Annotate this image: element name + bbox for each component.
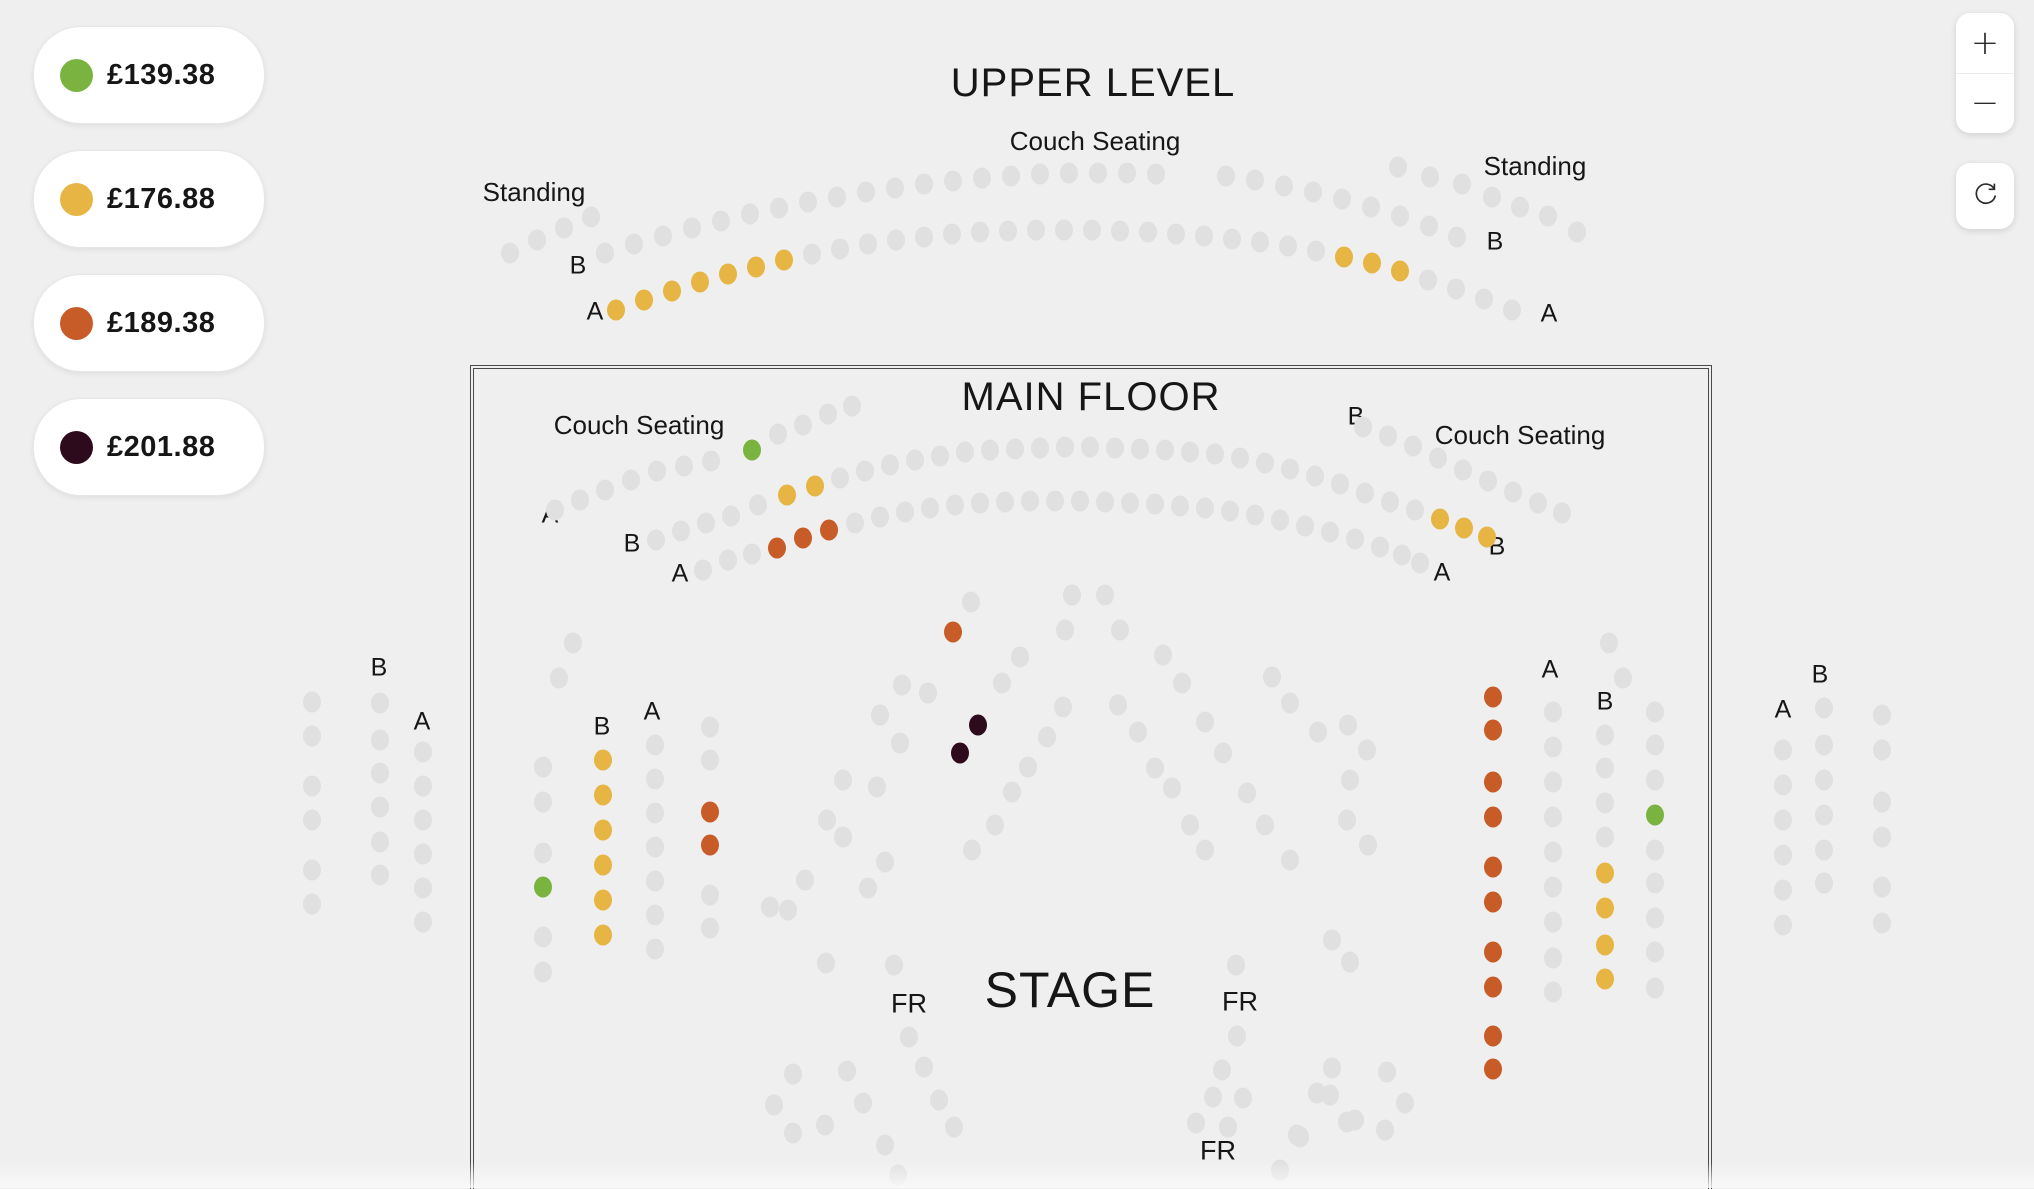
seat-available-orange[interactable] <box>1484 977 1502 998</box>
seat-available-yellow[interactable] <box>1335 247 1353 268</box>
seat-unavailable <box>1544 702 1562 723</box>
seat-unavailable <box>702 451 720 472</box>
seat-unavailable <box>876 1135 894 1156</box>
price-label: £189.38 <box>107 307 215 340</box>
seat-unavailable <box>1223 229 1241 250</box>
seat-unavailable <box>838 1061 856 1082</box>
seat-unavailable <box>854 1093 872 1114</box>
seat-unavailable <box>993 673 1011 694</box>
seat-unavailable <box>1038 727 1056 748</box>
seat-unavailable <box>1031 438 1049 459</box>
seat-unavailable <box>943 224 961 245</box>
seat-unavailable <box>973 168 991 189</box>
seat-unavailable <box>1381 492 1399 513</box>
seat-unavailable <box>945 1117 963 1138</box>
seat-available-yellow[interactable] <box>1431 509 1449 530</box>
seat-unavailable <box>1815 840 1833 861</box>
seat-unavailable <box>843 396 861 417</box>
zoom-in-button[interactable]: + <box>1956 13 2014 73</box>
seat-unavailable <box>1060 163 1078 184</box>
seat-unavailable <box>1359 835 1377 856</box>
seat-available-yellow[interactable] <box>1391 261 1409 282</box>
seat-available-yellow[interactable] <box>594 785 612 806</box>
seat-unavailable <box>831 239 849 260</box>
seat-unavailable <box>1614 668 1632 689</box>
seat-unavailable <box>1307 241 1325 262</box>
seat-unavailable <box>414 844 432 865</box>
seat-unavailable <box>817 953 835 974</box>
seat-unavailable <box>828 187 846 208</box>
seat-unavailable <box>896 502 914 523</box>
seat-available-yellow[interactable] <box>691 272 709 293</box>
seat-unavailable <box>1393 545 1411 566</box>
seat-unavailable <box>1219 1117 1237 1138</box>
seat-unavailable <box>794 415 812 436</box>
seat-available-green[interactable] <box>1646 805 1664 826</box>
seat-unavailable <box>1195 226 1213 247</box>
seat-unavailable <box>1181 815 1199 836</box>
seat-unavailable <box>1873 740 1891 761</box>
seat-unavailable <box>1774 775 1792 796</box>
seat-available-orange[interactable] <box>1484 772 1502 793</box>
seat-unavailable <box>971 493 989 514</box>
seat-unavailable <box>1231 448 1249 469</box>
seat-unavailable <box>1815 873 1833 894</box>
seat-unavailable <box>769 424 787 445</box>
seat-unavailable <box>1323 1058 1341 1079</box>
seat-unavailable <box>1011 647 1029 668</box>
seat-unavailable <box>944 171 962 192</box>
seat-unavailable <box>1263 667 1281 688</box>
seat-unavailable <box>1275 176 1293 197</box>
seat-unavailable <box>1646 770 1664 791</box>
row-label: A <box>414 710 431 735</box>
seat-unavailable <box>1321 522 1339 543</box>
seat-unavailable <box>1338 810 1356 831</box>
seat-unavailable <box>765 1095 783 1116</box>
seat-available-orange[interactable] <box>1484 1026 1502 1047</box>
seat-available-orange[interactable] <box>1484 807 1502 828</box>
seat-unavailable <box>534 962 552 983</box>
seat-available-yellow[interactable] <box>1596 898 1614 919</box>
zoom-controls: + − <box>1956 13 2014 133</box>
row-label: A <box>1434 561 1451 586</box>
seat-unavailable <box>1596 758 1614 779</box>
seat-unavailable <box>1323 930 1341 951</box>
seat-unavailable <box>743 544 761 565</box>
seat-available-dark[interactable] <box>951 743 969 764</box>
seat-available-yellow[interactable] <box>775 250 793 271</box>
seat-unavailable <box>1379 426 1397 447</box>
seat-unavailable <box>1083 220 1101 241</box>
seat-unavailable <box>1341 952 1359 973</box>
seat-available-yellow[interactable] <box>1596 935 1614 956</box>
seat-unavailable <box>528 230 546 251</box>
seat-unavailable <box>1371 537 1389 558</box>
seat-unavailable <box>856 461 874 482</box>
seat-available-yellow[interactable] <box>1455 518 1473 539</box>
seat-unavailable <box>1173 673 1191 694</box>
seat-unavailable <box>834 770 852 791</box>
seat-unavailable <box>818 810 836 831</box>
seat-unavailable <box>1475 289 1493 310</box>
seat-unavailable <box>1421 167 1439 188</box>
seat-available-yellow[interactable] <box>778 485 796 506</box>
row-label: A <box>1541 302 1558 327</box>
seat-available-yellow[interactable] <box>594 750 612 771</box>
seat-unavailable <box>596 480 614 501</box>
seat-unavailable <box>1163 778 1181 799</box>
seat-unavailable <box>646 769 664 790</box>
seat-unavailable <box>1339 715 1357 736</box>
seat-unavailable <box>956 442 974 463</box>
seat-unavailable <box>1147 164 1165 185</box>
seat-available-yellow[interactable] <box>1596 969 1614 990</box>
seat-unavailable <box>1251 232 1269 253</box>
seat-unavailable <box>1404 436 1422 457</box>
seat-unavailable <box>1873 913 1891 934</box>
seat-available-green[interactable] <box>534 877 552 898</box>
seat-unavailable <box>1171 496 1189 517</box>
seat-available-orange[interactable] <box>1484 942 1502 963</box>
legend-item: £176.88 <box>33 150 265 248</box>
seat-unavailable <box>859 878 877 899</box>
seat-unavailable <box>534 792 552 813</box>
seat-unavailable <box>1228 1026 1246 1047</box>
seat-available-yellow[interactable] <box>594 855 612 876</box>
price-color-dot <box>60 59 93 92</box>
seat-unavailable <box>741 204 759 225</box>
seat-available-dark[interactable] <box>969 715 987 736</box>
seat-unavailable <box>1354 417 1372 438</box>
row-label: Couch Seating <box>1435 422 1606 448</box>
seat-unavailable <box>1815 805 1833 826</box>
seat-unavailable <box>701 885 719 906</box>
seat-unavailable <box>1600 633 1618 654</box>
seat-unavailable <box>1296 516 1314 537</box>
seat-unavailable <box>1358 740 1376 761</box>
seat-available-yellow[interactable] <box>806 476 824 497</box>
seat-unavailable <box>1596 725 1614 746</box>
seat-unavailable <box>857 182 875 203</box>
seat-unavailable <box>1246 170 1264 191</box>
seat-unavailable <box>921 498 939 519</box>
seat-unavailable <box>859 234 877 255</box>
seat-unavailable <box>1279 236 1297 257</box>
seat-unavailable <box>1306 466 1324 487</box>
row-label: A <box>672 562 689 587</box>
seat-unavailable <box>1646 873 1664 894</box>
seat-unavailable <box>683 218 701 239</box>
seat-unavailable <box>622 470 640 491</box>
price-label: £139.38 <box>107 59 215 92</box>
seat-unavailable <box>1056 620 1074 641</box>
seat-unavailable <box>962 592 980 613</box>
seat-available-yellow[interactable] <box>607 300 625 321</box>
seat-unavailable <box>1774 915 1792 936</box>
row-label: Standing <box>483 179 586 205</box>
seat-unavailable <box>1341 770 1359 791</box>
seat-unavailable <box>816 1115 834 1136</box>
seat-unavailable <box>303 726 321 747</box>
seat-unavailable <box>761 897 779 918</box>
seat-unavailable <box>654 226 672 247</box>
seat-unavailable <box>646 939 664 960</box>
seat-available-green[interactable] <box>743 440 761 461</box>
seat-unavailable <box>886 178 904 199</box>
seat-unavailable <box>1146 494 1164 515</box>
row-label: A <box>1542 658 1559 683</box>
seat-unavailable <box>701 717 719 738</box>
row-label: Couch Seating <box>1010 128 1181 154</box>
seat-unavailable <box>893 675 911 696</box>
seat-unavailable <box>1109 695 1127 716</box>
seat-unavailable <box>1271 510 1289 531</box>
legend-item: £201.88 <box>33 398 265 496</box>
seat-unavailable <box>1483 187 1501 208</box>
seat-unavailable <box>1646 702 1664 723</box>
row-label: B <box>371 656 388 681</box>
seat-unavailable <box>414 776 432 797</box>
seat-unavailable <box>1063 585 1081 606</box>
seat-available-orange[interactable] <box>1484 1059 1502 1080</box>
seat-unavailable <box>1281 850 1299 871</box>
seat-unavailable <box>1447 279 1465 300</box>
seat-unavailable <box>1089 163 1107 184</box>
seat-available-yellow[interactable] <box>594 820 612 841</box>
venue-seat-map: UPPER LEVELCouch SeatingStandingStanding… <box>0 0 2034 1188</box>
seat-available-orange[interactable] <box>794 528 812 549</box>
seat-unavailable <box>1213 1060 1231 1081</box>
price-color-dot <box>60 431 93 464</box>
seat-unavailable <box>1873 827 1891 848</box>
seat-unavailable <box>1429 448 1447 469</box>
seat-unavailable <box>915 174 933 195</box>
seat-unavailable <box>930 1090 948 1111</box>
seat-unavailable <box>1256 453 1274 474</box>
seat-unavailable <box>722 506 740 527</box>
seat-unavailable <box>1815 770 1833 791</box>
seat-available-yellow[interactable] <box>594 890 612 911</box>
seat-unavailable <box>1568 222 1586 243</box>
seat-unavailable <box>571 490 589 511</box>
seat-unavailable <box>779 900 797 921</box>
seat-unavailable <box>871 705 889 726</box>
seat-unavailable <box>1121 493 1139 514</box>
seat-unavailable <box>770 198 788 219</box>
seat-available-yellow[interactable] <box>1363 253 1381 274</box>
seat-unavailable <box>1046 491 1064 512</box>
seat-unavailable <box>1539 206 1557 227</box>
seat-unavailable <box>1529 493 1547 514</box>
seat-unavailable <box>1448 227 1466 248</box>
seat-unavailable <box>881 455 899 476</box>
seat-unavailable <box>1504 482 1522 503</box>
seat-unavailable <box>1217 166 1235 187</box>
seat-unavailable <box>371 730 389 751</box>
row-label: B <box>624 532 641 557</box>
seat-available-yellow[interactable] <box>747 257 765 278</box>
seat-unavailable <box>996 492 1014 513</box>
seat-unavailable <box>648 461 666 482</box>
seat-unavailable <box>1096 585 1114 606</box>
seat-unavailable <box>1596 827 1614 848</box>
seat-unavailable <box>1873 705 1891 726</box>
seat-unavailable <box>303 692 321 713</box>
seat-unavailable <box>971 222 989 243</box>
row-label: B <box>1597 690 1614 715</box>
seat-unavailable <box>694 560 712 581</box>
seat-unavailable <box>1406 500 1424 521</box>
seat-unavailable <box>876 852 894 873</box>
seat-unavailable <box>1281 459 1299 480</box>
section-title: STAGE <box>985 965 1156 1015</box>
seat-unavailable <box>889 1165 907 1186</box>
price-color-dot <box>60 307 93 340</box>
seat-unavailable <box>1156 440 1174 461</box>
seat-unavailable <box>1596 793 1614 814</box>
seat-available-orange[interactable] <box>701 835 719 856</box>
seat-unavailable <box>1271 1160 1289 1181</box>
seat-unavailable <box>891 733 909 754</box>
seat-unavailable <box>550 668 568 689</box>
seat-unavailable <box>1378 1062 1396 1083</box>
seat-unavailable <box>697 513 715 534</box>
seat-available-orange[interactable] <box>1484 687 1502 708</box>
refresh-icon <box>1972 180 1999 212</box>
seat-unavailable <box>1214 743 1232 764</box>
row-label: B <box>570 254 587 279</box>
seat-unavailable <box>819 404 837 425</box>
section-title: MAIN FLOOR <box>962 377 1221 417</box>
seat-available-orange[interactable] <box>1484 857 1502 878</box>
seat-unavailable <box>1021 491 1039 512</box>
seat-unavailable <box>915 1057 933 1078</box>
seat-unavailable <box>871 507 889 528</box>
seat-available-yellow[interactable] <box>635 290 653 311</box>
row-label: FR <box>1200 1138 1236 1165</box>
seat-unavailable <box>1646 942 1664 963</box>
seat-unavailable <box>1646 908 1664 929</box>
seat-unavailable <box>646 803 664 824</box>
seat-unavailable <box>1071 491 1089 512</box>
seat-unavailable <box>1055 220 1073 241</box>
seatmap-page: { "palette": { "background": "#efefef", … <box>0 0 2034 1188</box>
seat-unavailable <box>675 456 693 477</box>
seat-unavailable <box>1511 197 1529 218</box>
seat-available-yellow[interactable] <box>594 925 612 946</box>
seat-unavailable <box>1774 845 1792 866</box>
seat-unavailable <box>1304 182 1322 203</box>
seat-unavailable <box>534 843 552 864</box>
seat-unavailable <box>1081 437 1099 458</box>
seat-available-orange[interactable] <box>701 802 719 823</box>
seat-unavailable <box>1181 442 1199 463</box>
seat-unavailable <box>919 683 937 704</box>
seat-unavailable <box>1154 645 1172 666</box>
seat-unavailable <box>1419 270 1437 291</box>
seat-available-orange[interactable] <box>1484 720 1502 741</box>
seat-unavailable <box>501 243 519 264</box>
seat-unavailable <box>1246 505 1264 526</box>
seat-unavailable <box>414 810 432 831</box>
seat-available-orange[interactable] <box>768 538 786 559</box>
zoom-out-button[interactable]: − <box>1956 74 2014 134</box>
seat-unavailable <box>414 912 432 933</box>
seat-unavailable <box>371 865 389 886</box>
seat-unavailable <box>1288 1125 1306 1146</box>
seat-unavailable <box>885 955 903 976</box>
seat-unavailable <box>1362 197 1380 218</box>
row-label: A <box>1775 698 1792 723</box>
seat-unavailable <box>900 1027 918 1048</box>
seat-unavailable <box>1054 697 1072 718</box>
seat-unavailable <box>414 742 432 763</box>
seat-available-orange[interactable] <box>944 622 962 643</box>
seat-unavailable <box>1544 772 1562 793</box>
seat-unavailable <box>868 777 886 798</box>
seat-unavailable <box>1338 1112 1356 1133</box>
seat-unavailable <box>371 763 389 784</box>
seat-unavailable <box>1206 444 1224 465</box>
seat-unavailable <box>946 495 964 516</box>
seat-unavailable <box>371 797 389 818</box>
seat-unavailable <box>303 894 321 915</box>
seat-unavailable <box>1196 840 1214 861</box>
seat-unavailable <box>646 735 664 756</box>
seat-unavailable <box>1376 1120 1394 1141</box>
seat-unavailable <box>887 230 905 251</box>
seat-unavailable <box>1331 474 1349 495</box>
seat-unavailable <box>1003 782 1021 803</box>
seat-available-yellow[interactable] <box>663 281 681 302</box>
seat-unavailable <box>1544 982 1562 1003</box>
seat-unavailable <box>1553 503 1571 524</box>
seat-available-yellow[interactable] <box>1478 527 1496 548</box>
seat-unavailable <box>1002 166 1020 187</box>
seat-unavailable <box>1111 221 1129 242</box>
seat-unavailable <box>906 450 924 471</box>
seat-available-orange[interactable] <box>820 520 838 541</box>
seat-unavailable <box>647 530 665 551</box>
seat-unavailable <box>1019 757 1037 778</box>
seat-unavailable <box>1227 955 1245 976</box>
seat-unavailable <box>1346 529 1364 550</box>
seat-unavailable <box>1356 483 1374 504</box>
seat-unavailable <box>712 211 730 232</box>
seat-unavailable <box>534 757 552 778</box>
seat-unavailable <box>1815 698 1833 719</box>
seat-unavailable <box>1131 439 1149 460</box>
seat-available-yellow[interactable] <box>1596 863 1614 884</box>
row-label: Standing <box>1484 153 1587 179</box>
reset-view-button[interactable] <box>1956 163 2014 229</box>
seat-unavailable <box>646 837 664 858</box>
seat-unavailable <box>1096 492 1114 513</box>
seat-unavailable <box>749 495 767 516</box>
seat-unavailable <box>1544 842 1562 863</box>
seat-unavailable <box>1544 737 1562 758</box>
legend-item: £189.38 <box>33 274 265 372</box>
seat-unavailable <box>646 871 664 892</box>
section-title: UPPER LEVEL <box>951 63 1235 103</box>
seat-available-orange[interactable] <box>1484 892 1502 913</box>
seat-unavailable <box>831 468 849 489</box>
seat-available-yellow[interactable] <box>719 264 737 285</box>
seat-unavailable <box>555 218 573 239</box>
seat-unavailable <box>1167 224 1185 245</box>
seat-unavailable <box>1479 471 1497 492</box>
